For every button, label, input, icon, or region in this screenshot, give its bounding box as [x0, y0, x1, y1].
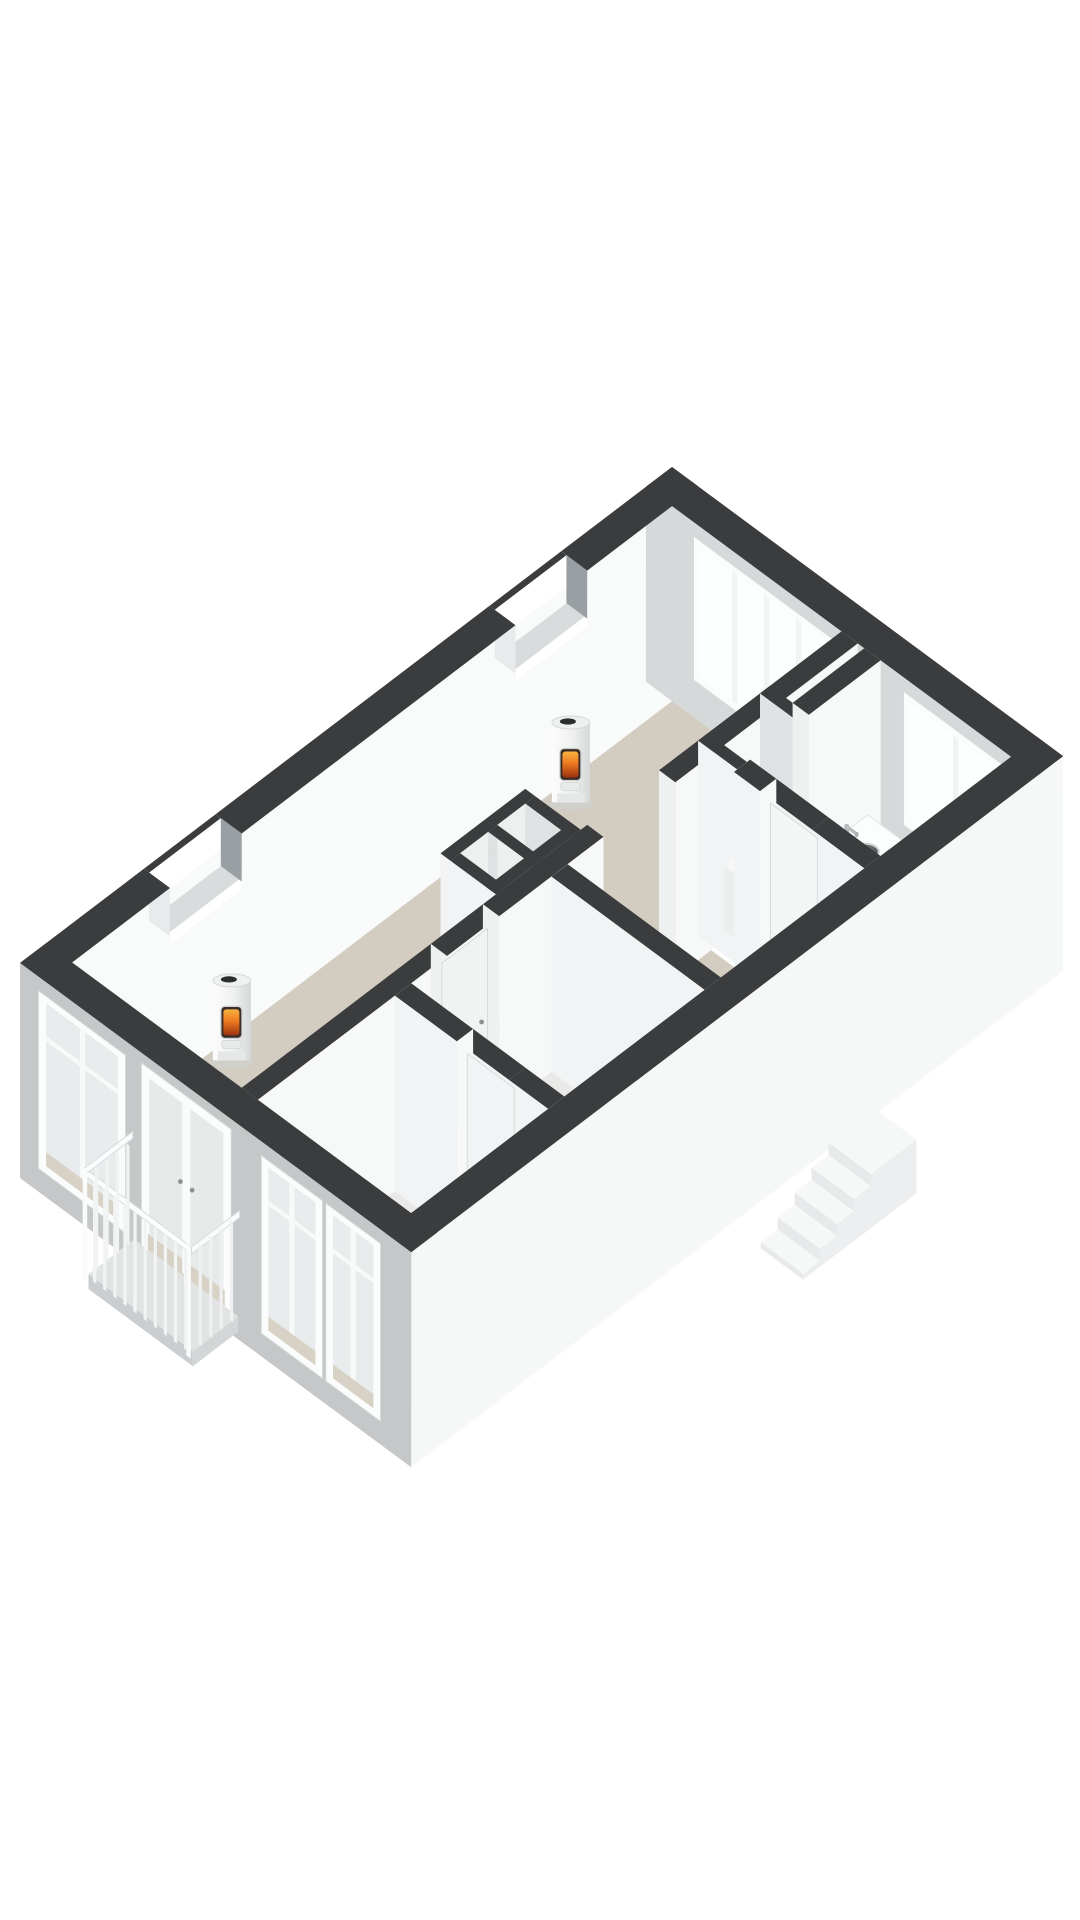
door-handle	[178, 1179, 183, 1184]
stove-flame	[223, 1009, 239, 1035]
balcony-baluster	[164, 1234, 167, 1336]
balcony-baluster	[144, 1219, 147, 1321]
balcony-baluster	[123, 1204, 126, 1306]
door-handle	[190, 1188, 195, 1193]
door-handle	[479, 1020, 484, 1025]
balcony-baluster	[126, 1143, 129, 1246]
balcony-baluster	[95, 1167, 98, 1269]
wood-stove-left	[210, 974, 254, 1069]
wood-stove-right	[549, 716, 593, 811]
balcony-baluster	[133, 1211, 136, 1313]
balcony-baluster	[230, 1220, 233, 1322]
stove-ash-drawer	[222, 1040, 241, 1048]
stove-flue-hole	[221, 976, 237, 982]
balcony-baluster	[105, 1159, 108, 1261]
balcony-door-glass-right	[190, 1109, 223, 1290]
stove-base	[557, 794, 585, 803]
stove-base	[218, 1051, 246, 1060]
balcony-post	[83, 1167, 88, 1282]
balcony-baluster	[209, 1236, 212, 1338]
ne-window-living-mullion	[732, 572, 737, 705]
floorplan-3d-render	[0, 0, 1080, 1920]
sw-window-3-mullion	[351, 1228, 356, 1395]
balcony-baluster	[220, 1228, 223, 1330]
balcony-baluster	[174, 1241, 177, 1343]
balcony-baluster	[154, 1226, 157, 1328]
stove-ash-drawer	[561, 783, 580, 791]
balcony-baluster	[184, 1249, 187, 1351]
floorplan-page	[0, 0, 1080, 1920]
balcony-baluster	[199, 1244, 202, 1346]
stove-flame	[562, 752, 578, 778]
sw-window-2-mullion	[289, 1183, 294, 1350]
balcony-baluster	[116, 1151, 119, 1253]
faucet-nozzle	[855, 832, 858, 837]
stove-flue-hole	[560, 718, 576, 724]
